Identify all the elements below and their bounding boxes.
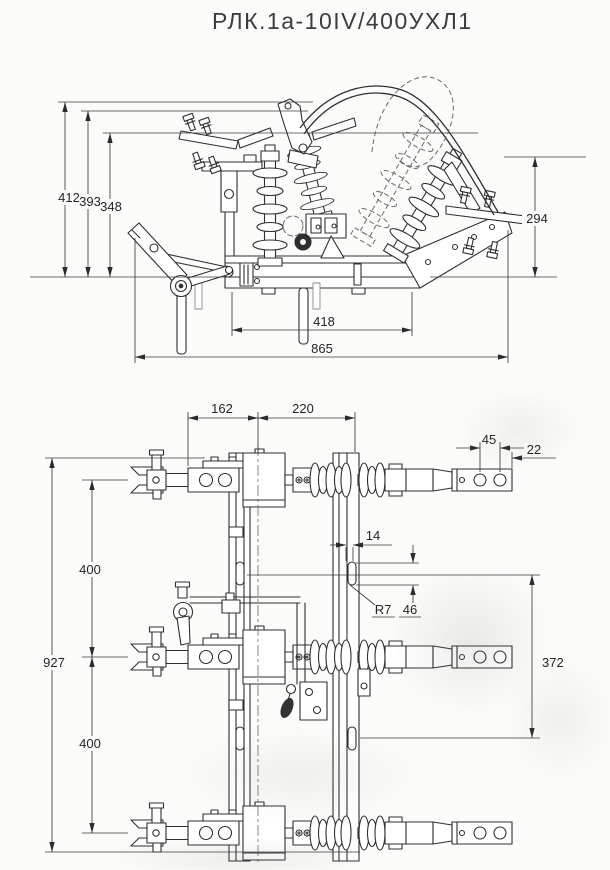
dim-radius-r7: R7	[375, 602, 392, 617]
dim-height-294: 294	[526, 211, 548, 226]
dim-height-927: 927	[43, 655, 65, 670]
dim-holes-45: 45	[482, 432, 496, 447]
latch-assembly	[279, 682, 327, 720]
dim-pitch-400-lower: 400	[79, 736, 101, 751]
rotating-hinge	[283, 214, 346, 258]
insulator-phantom-open	[346, 111, 445, 249]
drawing-page: { "title": "РЛК.1а-10IV/400УХЛ1", "front…	[0, 0, 610, 870]
base-channel	[223, 256, 420, 294]
plan-view: 162 220 45 22 927 400 400 14 R7 46 372	[39, 401, 564, 864]
phase-bottom	[131, 802, 512, 860]
dim-base-418: 418	[313, 314, 335, 329]
operating-lever	[128, 223, 233, 297]
dim-width-865: 865	[311, 341, 333, 356]
dim-slot-14: 14	[366, 528, 380, 543]
dim-span-220: 220	[292, 401, 314, 416]
dim-height-412: 412	[58, 190, 80, 205]
technical-drawing: 412 393 348 294 418 865	[0, 0, 610, 870]
hanging-rods	[177, 283, 320, 354]
dim-height-393: 393	[79, 194, 101, 209]
dim-pitch-372: 372	[542, 655, 564, 670]
latch-handle	[279, 697, 296, 719]
dim-height-348: 348	[100, 199, 122, 214]
dim-pitch-400-upper: 400	[79, 562, 101, 577]
front-view: 412 393 348 294 418 865	[30, 77, 586, 363]
dim-edge-22: 22	[527, 442, 541, 457]
mounting-tab	[358, 669, 370, 696]
dim-slot-46: 46	[403, 602, 417, 617]
dim-offset-162: 162	[211, 401, 233, 416]
